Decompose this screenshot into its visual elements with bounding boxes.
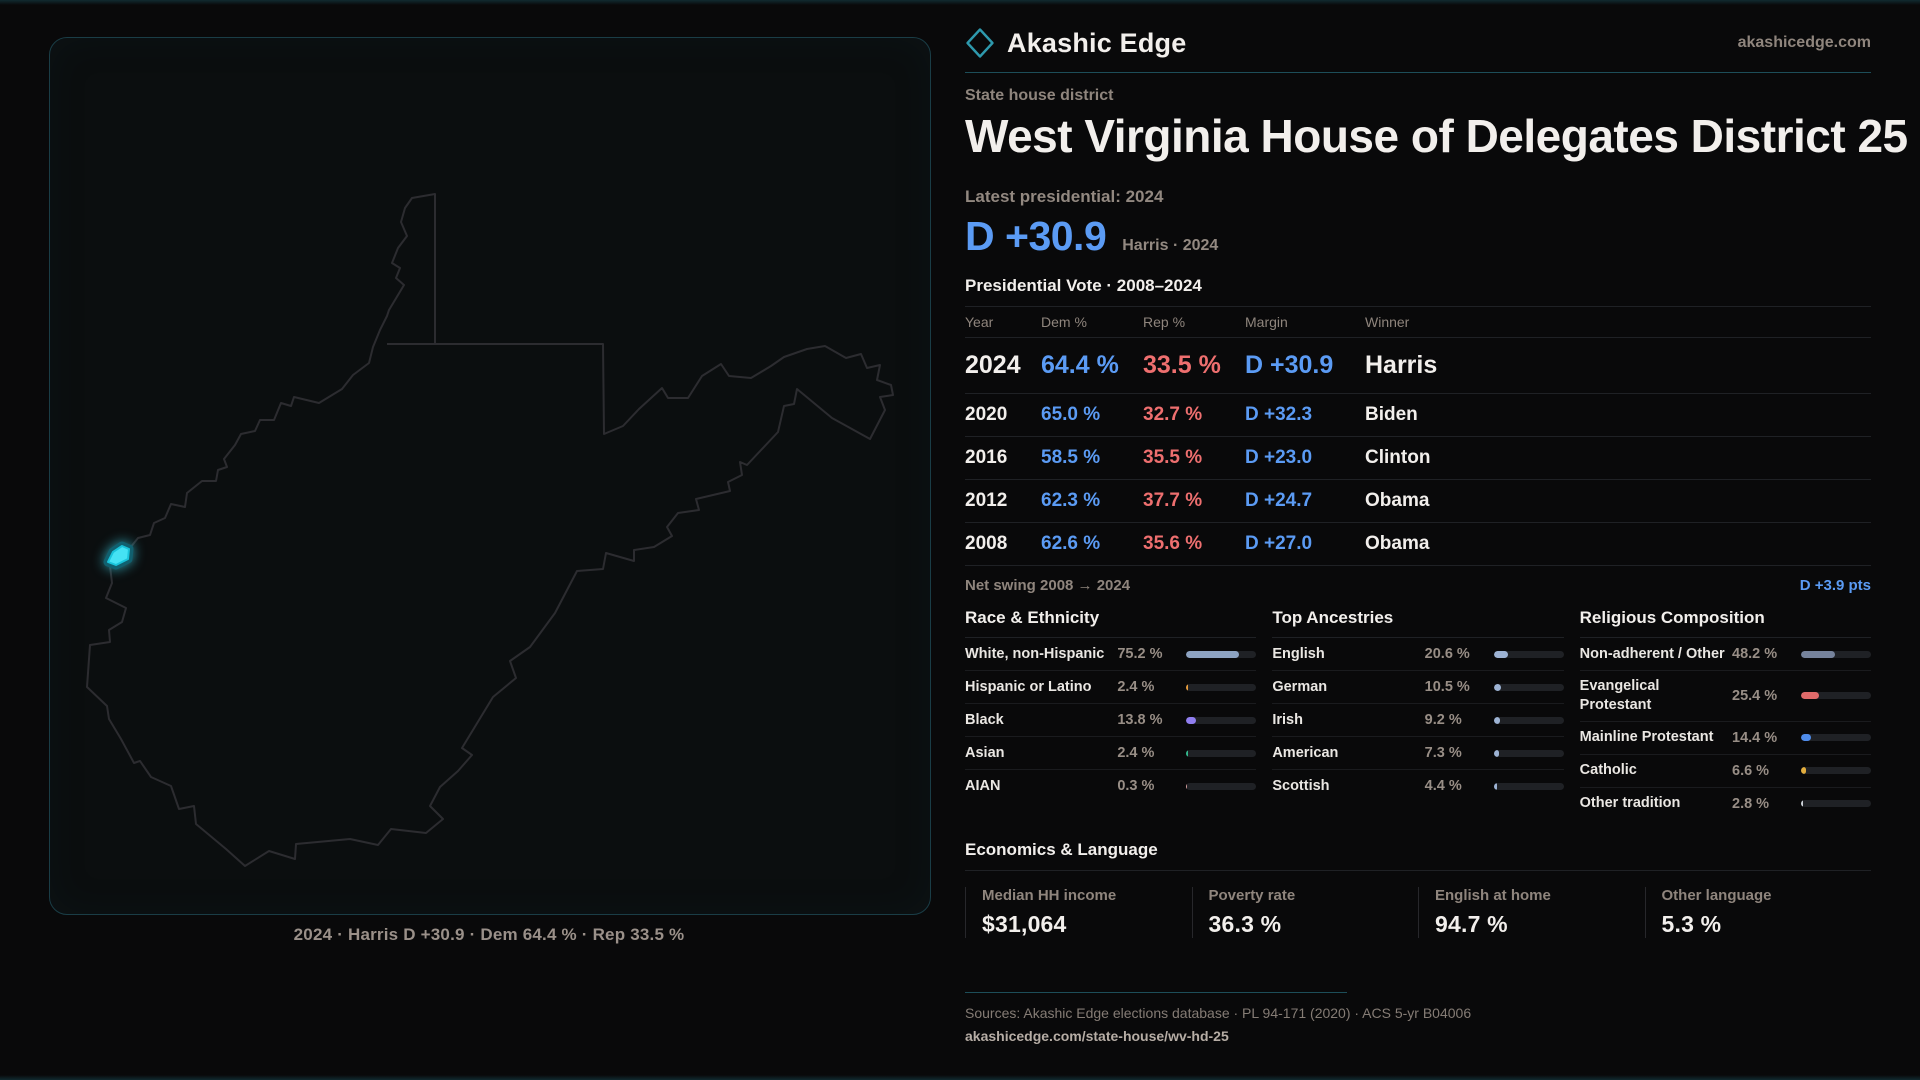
stat-label: Poverty rate	[1209, 887, 1419, 904]
demographic-section: Race & EthnicityWhite, non-Hispanic75.2 …	[965, 608, 1256, 820]
demographic-row: Mainline Protestant14.4 %	[1580, 721, 1871, 754]
brand-header: Akashic Edge akashicedge.com	[965, 27, 1871, 59]
akashic-edge-district-page: { "brand": { "name": "Akashic Edge", "si…	[0, 0, 1920, 1080]
stat-value: 5.3 %	[1662, 911, 1872, 938]
cell-winner: Obama	[1365, 533, 1871, 555]
stat-value: 94.7 %	[1435, 911, 1645, 938]
demographic-row: Evangelical Protestant25.4 %	[1580, 670, 1871, 721]
demographic-row: Black13.8 %	[965, 703, 1256, 736]
stat-label: Other language	[1662, 887, 1872, 904]
cell-margin: D +27.0	[1245, 533, 1355, 555]
demographic-label: White, non-Hispanic	[965, 645, 1112, 664]
cell-dem: 65.0 %	[1041, 404, 1133, 426]
col-header-dem: Dem %	[1041, 314, 1133, 330]
cell-winner: Clinton	[1365, 447, 1871, 469]
demographic-row: Catholic6.6 %	[1580, 754, 1871, 787]
page-title: West Virginia House of Delegates Distric…	[965, 109, 1920, 163]
demographic-row: AIAN0.3 %	[965, 769, 1256, 802]
demographic-bar-fill	[1186, 717, 1196, 724]
cell-winner: Biden	[1365, 404, 1871, 426]
demographic-row: Hispanic or Latino2.4 %	[965, 670, 1256, 703]
demographic-bar-track	[1494, 717, 1564, 724]
demographic-bar-track	[1494, 684, 1564, 691]
demographic-label: Non-adherent / Other	[1580, 645, 1727, 664]
demographic-bar-track	[1494, 750, 1564, 757]
demographics-sections: Race & EthnicityWhite, non-Hispanic75.2 …	[965, 608, 1871, 820]
demographic-row: American7.3 %	[1272, 736, 1563, 769]
state-outline	[87, 194, 893, 866]
stat-card: Poverty rate36.3 %	[1192, 887, 1419, 938]
demographic-row: White, non-Hispanic75.2 %	[965, 638, 1256, 670]
stat-label: English at home	[1435, 887, 1645, 904]
demographic-bar-track	[1801, 651, 1871, 658]
headline-margin: D +30.9 Harris · 2024	[965, 213, 1920, 260]
demographic-bar-track	[1186, 750, 1256, 757]
table-row: 200862.6 %35.6 %D +27.0Obama	[965, 523, 1871, 566]
state-map-panel	[49, 37, 931, 915]
cell-year: 2016	[965, 447, 1031, 469]
demographic-value: 7.3 %	[1425, 745, 1489, 761]
section-title: Religious Composition	[1580, 608, 1871, 638]
cell-year: 2020	[965, 404, 1031, 426]
cell-dem: 62.6 %	[1041, 533, 1133, 555]
demographic-row: Scottish4.4 %	[1272, 769, 1563, 802]
demographic-bar-fill	[1801, 767, 1806, 774]
demographic-value: 10.5 %	[1425, 679, 1489, 695]
header-divider	[965, 72, 1871, 73]
demographic-bar-fill	[1801, 651, 1835, 658]
demographic-label: American	[1272, 744, 1419, 763]
sources-text: Sources: Akashic Edge elections database…	[965, 1005, 1920, 1021]
stat-card: Other language5.3 %	[1645, 887, 1872, 938]
demographic-row: Other tradition2.8 %	[1580, 787, 1871, 820]
cell-rep: 37.7 %	[1143, 490, 1235, 512]
demographic-label: Evangelical Protestant	[1580, 677, 1727, 715]
net-swing-value: D +3.9 pts	[1800, 577, 1871, 594]
demographic-value: 14.4 %	[1732, 730, 1796, 746]
demographic-value: 9.2 %	[1425, 712, 1489, 728]
cell-margin: D +23.0	[1245, 447, 1355, 469]
margin-note: Harris · 2024	[1122, 237, 1218, 255]
demographic-label: Mainline Protestant	[1580, 728, 1727, 747]
demographic-bar-track	[1801, 767, 1871, 774]
demographic-bar-fill	[1494, 651, 1508, 658]
demographic-value: 13.8 %	[1117, 712, 1181, 728]
demographic-row: German10.5 %	[1272, 670, 1563, 703]
cell-rep: 35.5 %	[1143, 447, 1235, 469]
demographic-bar-fill	[1186, 750, 1188, 757]
demographic-value: 2.4 %	[1117, 745, 1181, 761]
demographic-value: 6.6 %	[1732, 763, 1796, 779]
demographic-row: Non-adherent / Other48.2 %	[1580, 638, 1871, 670]
demographic-bar-track	[1801, 734, 1871, 741]
presidential-table: Year Dem % Rep % Margin Winner 202464.4 …	[965, 306, 1871, 566]
demographic-value: 2.8 %	[1732, 796, 1796, 812]
net-swing-label: Net swing 2008 → 2024	[965, 577, 1130, 594]
demographic-value: 48.2 %	[1732, 646, 1796, 662]
stat-label: Median HH income	[982, 887, 1192, 904]
cell-year: 2008	[965, 533, 1031, 555]
demographic-bar-track	[1186, 717, 1256, 724]
demographic-bar-track	[1494, 783, 1564, 790]
demographic-bar-fill	[1801, 692, 1819, 699]
demographic-label: Asian	[965, 744, 1112, 763]
col-header-year: Year	[965, 314, 1031, 330]
demographic-row: English20.6 %	[1272, 638, 1563, 670]
economics-title: Economics & Language	[965, 840, 1871, 871]
net-swing-row: Net swing 2008 → 2024 D +3.9 pts	[965, 577, 1871, 594]
demographic-bar-track	[1186, 684, 1256, 691]
demographic-label: AIAN	[965, 777, 1112, 796]
demographic-bar-fill	[1801, 800, 1803, 807]
demographic-section: Religious CompositionNon-adherent / Othe…	[1580, 608, 1871, 820]
footer-divider	[965, 992, 1347, 993]
demographic-bar-track	[1186, 651, 1256, 658]
demographic-bar-track	[1801, 692, 1871, 699]
wv-map	[50, 38, 930, 914]
cell-dem: 64.4 %	[1041, 351, 1133, 380]
cell-margin: D +24.7	[1245, 490, 1355, 512]
demographic-bar-fill	[1494, 684, 1501, 691]
demographic-value: 0.3 %	[1117, 778, 1181, 794]
site-link[interactable]: akashicedge.com	[1738, 34, 1871, 52]
cell-rep: 33.5 %	[1143, 351, 1235, 380]
cell-rep: 32.7 %	[1143, 404, 1235, 426]
page-url-link[interactable]: akashicedge.com/state-house/wv-hd-25	[965, 1028, 1920, 1044]
demographic-section: Top AncestriesEnglish20.6 %German10.5 %I…	[1272, 608, 1563, 820]
demographic-value: 25.4 %	[1732, 688, 1796, 704]
diamond-logo-icon	[965, 27, 995, 59]
section-title: Race & Ethnicity	[965, 608, 1256, 638]
demographic-label: Hispanic or Latino	[965, 678, 1112, 697]
cell-year: 2024	[965, 351, 1031, 380]
demographic-label: Other tradition	[1580, 794, 1727, 813]
demographic-value: 20.6 %	[1425, 646, 1489, 662]
demographic-bar-fill	[1186, 651, 1239, 658]
table-row: 201262.3 %37.7 %D +24.7Obama	[965, 480, 1871, 523]
demographic-label: Black	[965, 711, 1112, 730]
demographic-label: Scottish	[1272, 777, 1419, 796]
cell-rep: 35.6 %	[1143, 533, 1235, 555]
cell-margin: D +30.9	[1245, 351, 1355, 380]
demographic-bar-track	[1186, 783, 1256, 790]
demographic-bar-fill	[1801, 734, 1811, 741]
demographic-bar-track	[1801, 800, 1871, 807]
brand-name: Akashic Edge	[1007, 28, 1738, 59]
cell-winner: Obama	[1365, 490, 1871, 512]
demographic-label: Irish	[1272, 711, 1419, 730]
section-title: Top Ancestries	[1272, 608, 1563, 638]
demographic-label: German	[1272, 678, 1419, 697]
demographic-label: English	[1272, 645, 1419, 664]
demographic-value: 75.2 %	[1117, 646, 1181, 662]
cell-dem: 62.3 %	[1041, 490, 1133, 512]
cell-winner: Harris	[1365, 351, 1871, 380]
cell-year: 2012	[965, 490, 1031, 512]
stat-card: Median HH income$31,064	[965, 887, 1192, 938]
map-caption: 2024 · Harris D +30.9 · Dem 64.4 % · Rep…	[49, 925, 929, 945]
stat-card: English at home94.7 %	[1418, 887, 1645, 938]
latest-presidential-label: Latest presidential: 2024	[965, 187, 1920, 207]
stat-value: 36.3 %	[1209, 911, 1419, 938]
page-kicker: State house district	[965, 87, 1920, 105]
demographic-value: 2.4 %	[1117, 679, 1181, 695]
stat-value: $31,064	[982, 911, 1192, 938]
col-header-winner: Winner	[1365, 314, 1871, 330]
demographic-bar-fill	[1186, 684, 1188, 691]
demographic-row: Irish9.2 %	[1272, 703, 1563, 736]
cell-dem: 58.5 %	[1041, 447, 1133, 469]
demographic-label: Catholic	[1580, 761, 1727, 780]
table-header-row: Year Dem % Rep % Margin Winner	[965, 306, 1871, 338]
table-row: 202464.4 %33.5 %D +30.9Harris	[965, 338, 1871, 394]
demographic-bar-fill	[1494, 717, 1500, 724]
district-report: Akashic Edge akashicedge.com State house…	[965, 0, 1920, 1044]
demographic-bar-fill	[1494, 783, 1497, 790]
cell-margin: D +32.3	[1245, 404, 1355, 426]
table-row: 202065.0 %32.7 %D +32.3Biden	[965, 394, 1871, 437]
economics-stats: Median HH income$31,064Poverty rate36.3 …	[965, 887, 1871, 938]
col-header-margin: Margin	[1245, 314, 1355, 330]
demographic-value: 4.4 %	[1425, 778, 1489, 794]
margin-value: D +30.9	[965, 213, 1106, 260]
demographic-bar-fill	[1494, 750, 1499, 757]
page-footer: Sources: Akashic Edge elections database…	[965, 992, 1920, 1044]
table-title: Presidential Vote · 2008–2024	[965, 276, 1920, 296]
demographic-bar-track	[1494, 651, 1564, 658]
demographic-row: Asian2.4 %	[965, 736, 1256, 769]
col-header-rep: Rep %	[1143, 314, 1235, 330]
table-row: 201658.5 %35.5 %D +23.0Clinton	[965, 437, 1871, 480]
